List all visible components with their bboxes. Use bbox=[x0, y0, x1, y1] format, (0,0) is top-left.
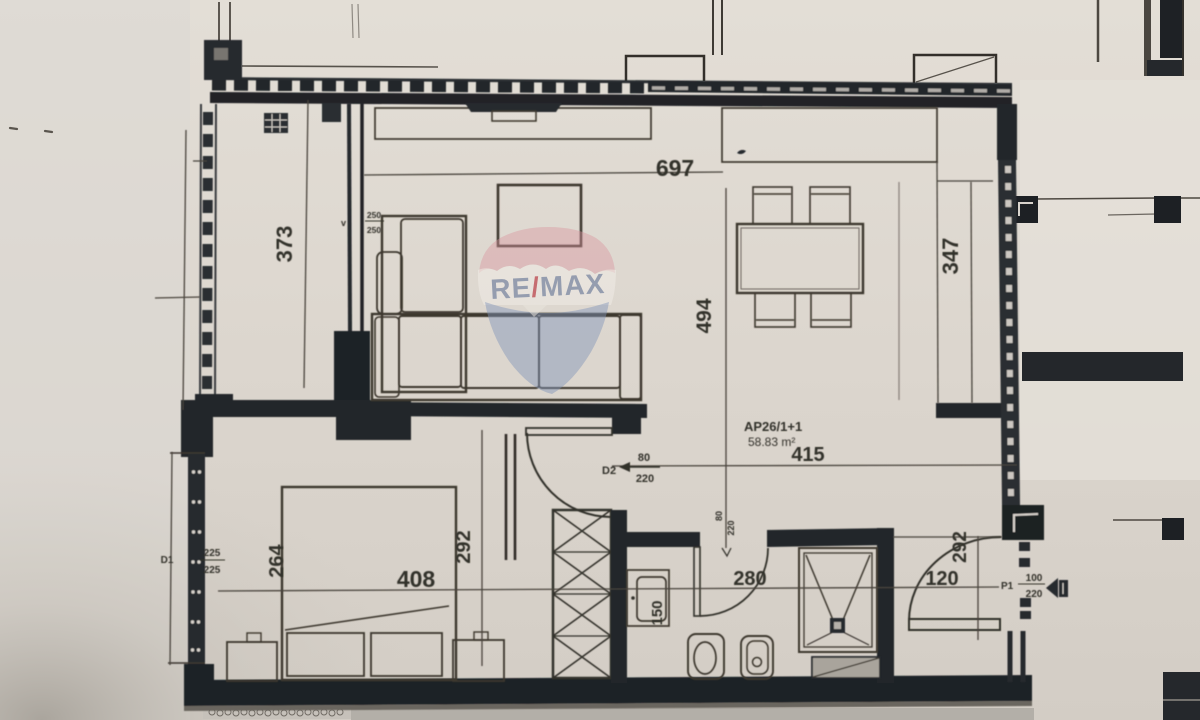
svg-text:697: 697 bbox=[656, 155, 694, 181]
svg-text:100: 100 bbox=[1026, 573, 1043, 584]
svg-text:280: 280 bbox=[733, 568, 766, 590]
svg-text:150: 150 bbox=[649, 600, 666, 625]
svg-text:80: 80 bbox=[638, 452, 650, 464]
svg-text:AP26/1+1: AP26/1+1 bbox=[744, 419, 802, 434]
svg-text:RE/MAX: RE/MAX bbox=[490, 268, 606, 305]
svg-text:80: 80 bbox=[714, 511, 724, 521]
svg-text:292: 292 bbox=[950, 531, 971, 563]
svg-text:415: 415 bbox=[791, 444, 824, 466]
svg-text:347: 347 bbox=[938, 238, 963, 275]
svg-text:373: 373 bbox=[272, 226, 297, 263]
svg-text:D2: D2 bbox=[602, 465, 616, 477]
svg-text:220: 220 bbox=[726, 520, 736, 535]
svg-text:58.83 m²: 58.83 m² bbox=[748, 435, 795, 449]
svg-text:225: 225 bbox=[204, 548, 221, 559]
svg-text:120: 120 bbox=[925, 568, 958, 590]
svg-text:408: 408 bbox=[397, 566, 436, 592]
svg-text:250: 250 bbox=[367, 210, 381, 220]
svg-text:220: 220 bbox=[1026, 589, 1043, 600]
svg-text:D1: D1 bbox=[161, 555, 174, 566]
svg-text:P1: P1 bbox=[1001, 581, 1014, 592]
svg-text:494: 494 bbox=[693, 298, 716, 333]
svg-text:v: v bbox=[341, 218, 346, 228]
svg-text:292: 292 bbox=[453, 530, 475, 563]
svg-text:225: 225 bbox=[204, 565, 221, 576]
svg-text:264: 264 bbox=[266, 543, 288, 577]
svg-text:220: 220 bbox=[636, 473, 654, 485]
svg-text:250: 250 bbox=[367, 225, 381, 235]
